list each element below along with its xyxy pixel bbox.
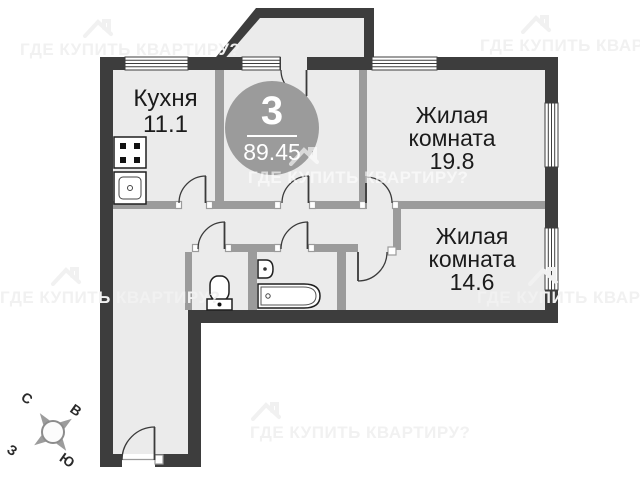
watermark: ГДЕ КУПИТЬ КВАРТИРУ? [477,264,640,308]
bathtub-icon [258,284,320,308]
room-name: Кухня [98,86,233,112]
wall-bath-right [337,252,346,310]
wall-bath-corridor [225,244,281,252]
house-icon [250,399,284,421]
wall-room-divider [392,201,545,209]
watermark: ГДЕ КУПИТЬ КВАРТИРУ? [20,16,240,60]
balcony-door-opening [281,57,307,70]
badge-divider [247,135,297,137]
room-label-kitchen: Кухня 11.1 [98,86,233,138]
stove-icon [114,137,146,168]
entrance-opening [122,454,155,467]
watermark: ГДЕ КУПИТЬ КВАРТИРУ? [480,12,640,56]
wall-corridor [309,201,366,209]
watermark-text: ГДЕ КУПИТЬ КВАРТИРУ? [480,36,640,55]
watermark-text: ГДЕ КУПИТЬ КВАРТИРУ? [20,40,240,59]
watermark: ГДЕ КУПИТЬ КВАРТИРУ? [0,264,220,308]
house-icon [527,264,561,286]
kitchen-sink-icon [114,172,146,204]
rooms-count: 3 [261,91,283,131]
watermark: ГДЕ КУПИТЬ КВАРТИРУ? [248,144,468,188]
house-icon [288,144,322,166]
floorplan-page: 3 89.45 Кухня 11.1 Жилая комната 19.8 Жи… [0,0,640,480]
watermark-text: ГДЕ КУПИТЬ КВАРТИРУ? [248,168,468,187]
house-icon [50,264,84,286]
watermark-text: ГДЕ КУПИТЬ КВАРТИРУ? [477,288,640,307]
wall-bath-corridor [308,244,358,252]
wash-basin-icon [258,260,273,278]
floor-hallway [113,310,188,454]
room-area: 11.1 [98,112,233,138]
house-icon [520,12,554,34]
compass-rose: С В З Ю [8,386,100,476]
watermark-text: ГДЕ КУПИТЬ КВАРТИРУ? [0,288,220,307]
wall-wc-bath-divider [248,252,257,310]
watermark: ГДЕ КУПИТЬ КВАРТИРУ? [250,399,470,443]
watermark-text: ГДЕ КУПИТЬ КВАРТИРУ? [250,423,470,442]
house-icon [82,16,116,38]
